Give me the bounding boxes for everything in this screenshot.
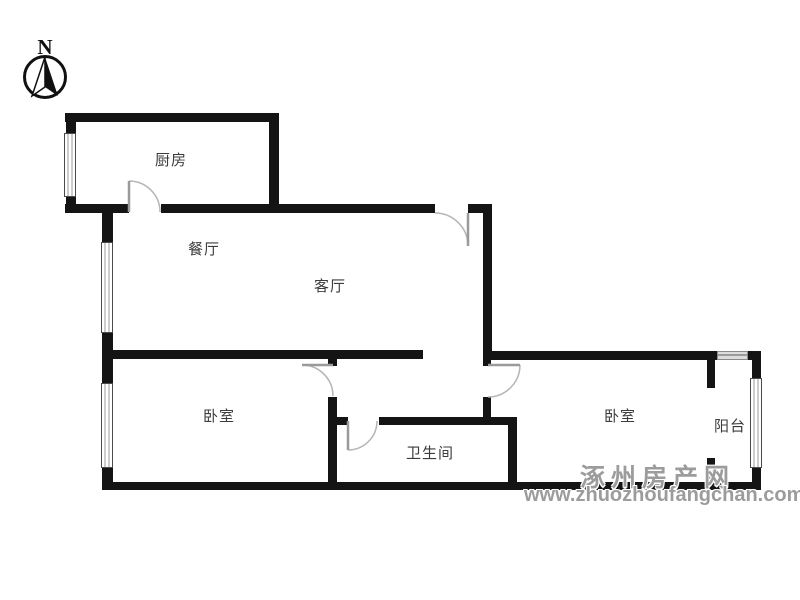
kitchen-door bbox=[129, 181, 160, 212]
room-label-balcony: 阳台 bbox=[714, 419, 746, 435]
room-label-kitchen: 厨房 bbox=[155, 153, 187, 169]
room-label-bedroom-left: 卧室 bbox=[203, 409, 235, 425]
door-arcs-layer bbox=[0, 0, 800, 600]
bedroom-right-door bbox=[488, 365, 520, 397]
room-label-living: 客厅 bbox=[314, 279, 346, 295]
room-label-dining: 餐厅 bbox=[188, 242, 220, 258]
bathroom-door bbox=[348, 421, 377, 450]
bedroom-left-door bbox=[302, 365, 333, 396]
room-label-bedroom-right: 卧室 bbox=[604, 409, 636, 425]
floorplan-canvas: N bbox=[0, 0, 800, 600]
watermark-site-url: www.zhuozhoufangchan.com bbox=[524, 484, 800, 507]
room-label-bathroom: 卫生间 bbox=[406, 446, 454, 462]
living-room-door bbox=[435, 213, 468, 246]
